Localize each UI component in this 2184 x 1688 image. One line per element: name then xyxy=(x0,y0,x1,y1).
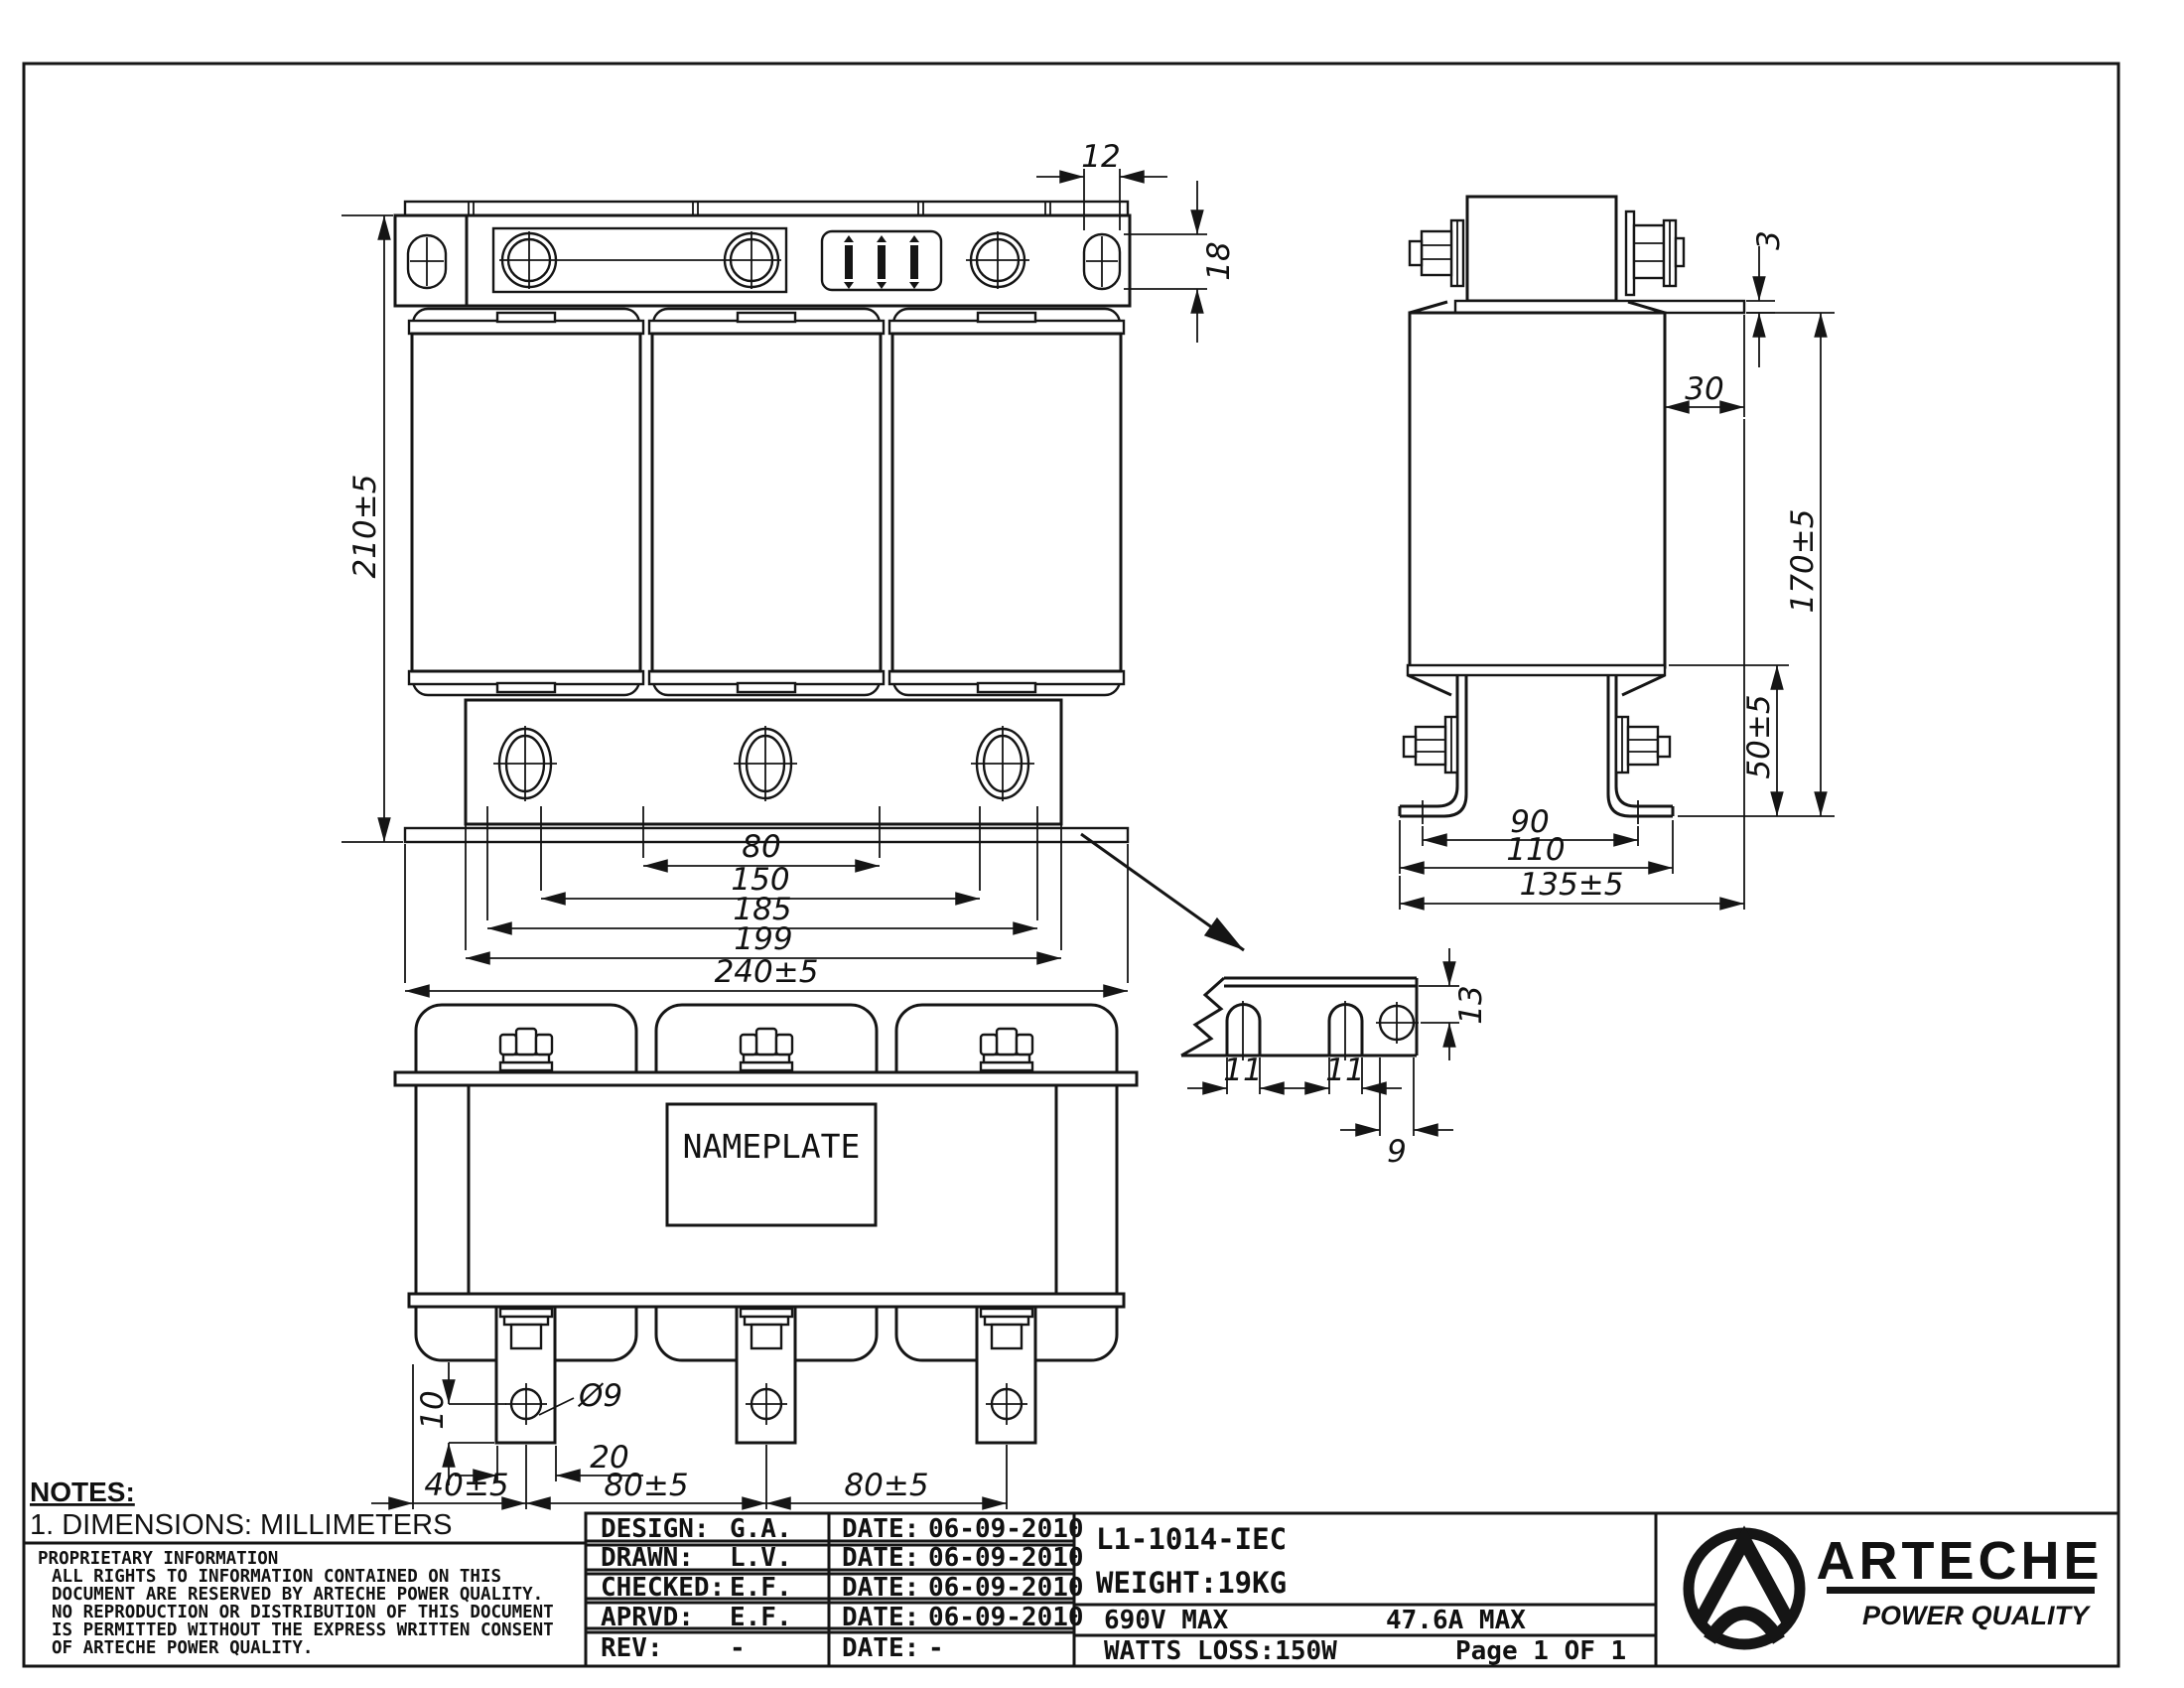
tb-date-value: 06-09-2010 xyxy=(928,1514,1084,1544)
notes-heading: NOTES: xyxy=(30,1477,135,1507)
tb-checked-value: E.F. xyxy=(730,1573,792,1603)
detail-dimensions: 11 11 13 9 xyxy=(1187,948,1489,1170)
brand-name: ARTECHE xyxy=(1816,1531,2103,1591)
tb-voltage: 690V MAX xyxy=(1104,1606,1229,1635)
brand-underline xyxy=(1827,1587,2095,1594)
front-view: 12 18 210±5 80 150 185 199 xyxy=(341,139,1244,991)
tb-aprvd-label: APRVD: xyxy=(601,1603,694,1632)
svg-text:DOCUMENT ARE RESERVED BY ARTEC: DOCUMENT ARE RESERVED BY ARTECHE POWER Q… xyxy=(52,1585,543,1605)
bracket-bolt-right xyxy=(1616,717,1670,773)
tb-date-value: 06-09-2010 xyxy=(928,1543,1084,1573)
bottom-flange xyxy=(1408,665,1665,675)
engineering-drawing-canvas: 12 18 210±5 80 150 185 199 xyxy=(0,0,2184,1688)
dim-foot-width: 110 xyxy=(1506,832,1565,868)
rear-view: NAMEPLATE 10 Ø9 20 xyxy=(371,1005,1137,1509)
tb-date-label: DATE: xyxy=(842,1514,919,1544)
svg-text:OF ARTECHE POWER QUALITY.: OF ARTECHE POWER QUALITY. xyxy=(52,1638,313,1658)
tb-current: 47.6A MAX xyxy=(1386,1606,1526,1635)
dim-offset: 30 xyxy=(1685,371,1723,407)
detail-leader-arrow xyxy=(1081,834,1244,950)
svg-text:NO REPRODUCTION OR DISTRIBUTIO: NO REPRODUCTION OR DISTRIBUTION OF THIS … xyxy=(52,1603,554,1622)
tb-part-number: L1-1014-IEC xyxy=(1096,1522,1287,1556)
dim-pitch-first: 40±5 xyxy=(424,1468,508,1503)
tb-date-value: 06-09-2010 xyxy=(928,1573,1084,1603)
dim-detail-slot-a: 11 xyxy=(1223,1053,1262,1088)
tb-date-label: DATE: xyxy=(842,1633,919,1663)
rear-bottom-plate xyxy=(409,1294,1124,1307)
dim-bracket-height: 50±5 xyxy=(1741,694,1777,778)
tb-design-value: G.A. xyxy=(730,1514,792,1544)
coil-3 xyxy=(889,309,1124,695)
dim-hole-dia: Ø9 xyxy=(577,1378,622,1414)
drawing-sheet: 12 18 210±5 80 150 185 199 xyxy=(0,0,2184,1688)
dim-pitch-a: 80±5 xyxy=(604,1468,688,1503)
dim-detail-hole-width: 9 xyxy=(1387,1134,1407,1170)
tb-rev-value: - xyxy=(730,1633,746,1663)
dim-slot-width: 12 xyxy=(1081,139,1120,175)
top-flange xyxy=(1455,301,1744,313)
tb-date-label: DATE: xyxy=(842,1543,919,1573)
dim-depth: 135±5 xyxy=(1520,867,1624,903)
tb-drawn-value: L.V. xyxy=(730,1543,792,1573)
dim-chain-80: 80 xyxy=(742,829,780,865)
tb-date-value: - xyxy=(928,1633,944,1663)
dim-detail-hole-depth: 13 xyxy=(1453,985,1489,1024)
bracket-bolt-left xyxy=(1404,717,1457,773)
dim-detail-slot-b: 11 xyxy=(1325,1053,1364,1088)
dim-pitch-b: 80±5 xyxy=(844,1468,928,1503)
rear-dimensions: 10 Ø9 20 40±5 80±5 80±5 xyxy=(371,1362,1007,1509)
svg-text:ALL RIGHTS TO INFORMATION CONT: ALL RIGHTS TO INFORMATION CONTAINED ON T… xyxy=(52,1567,501,1587)
top-strip xyxy=(405,202,1128,215)
dim-side-height: 170±5 xyxy=(1785,509,1821,614)
dim-chain-199: 199 xyxy=(734,921,792,957)
coil-1 xyxy=(409,309,643,695)
tb-weight: WEIGHT:19KG xyxy=(1096,1566,1287,1600)
rear-top-plate xyxy=(395,1072,1137,1085)
side-bolt-left xyxy=(1410,220,1463,286)
side-view: 3 30 170±5 50±5 90 110 135±5 xyxy=(1400,197,1835,910)
terminal-label-plate xyxy=(822,231,941,290)
tb-rev-label: REV: xyxy=(601,1633,663,1663)
tb-drawn-label: DRAWN: xyxy=(601,1543,694,1573)
terminal-block xyxy=(1467,197,1616,301)
dim-chain-240: 240±5 xyxy=(715,954,819,990)
brand-tagline: POWER QUALITY xyxy=(1862,1601,2092,1630)
tb-design-label: DESIGN: xyxy=(601,1514,710,1544)
tb-checked-label: CHECKED: xyxy=(601,1573,725,1603)
proprietary-note: PROPRIETARY INFORMATION ALL RIGHTS TO IN… xyxy=(38,1549,554,1658)
tb-date-value: 06-09-2010 xyxy=(928,1603,1084,1632)
arteche-logo-icon xyxy=(1689,1533,1800,1644)
dim-plate-lip: 3 xyxy=(1751,230,1787,250)
dim-hole-edge: 10 xyxy=(415,1390,451,1429)
svg-text:IS PERMITTED WITHOUT THE EXPRE: IS PERMITTED WITHOUT THE EXPRESS WRITTEN… xyxy=(52,1620,554,1640)
break-line xyxy=(1181,978,1224,1055)
dim-slot-height: 18 xyxy=(1201,241,1237,280)
logo-block: ARTECHE POWER QUALITY xyxy=(1689,1531,2104,1644)
detail-view: 11 11 13 9 xyxy=(1181,948,1489,1170)
side-body xyxy=(1410,313,1665,667)
coil-2 xyxy=(649,309,884,695)
tb-date-label: DATE: xyxy=(842,1603,919,1632)
nameplate-label: NAMEPLATE xyxy=(683,1127,861,1166)
tb-aprvd-value: E.F. xyxy=(730,1603,792,1632)
side-bolt-right xyxy=(1626,211,1684,295)
tb-watts-loss: WATTS LOSS:150W xyxy=(1104,1636,1337,1666)
tb-date-label: DATE: xyxy=(842,1573,919,1603)
dim-height: 210±5 xyxy=(347,475,383,579)
notes-dimension: 1. DIMENSIONS: MILLIMETERS xyxy=(30,1509,452,1541)
tb-page: Page 1 OF 1 xyxy=(1455,1636,1626,1666)
svg-text:PROPRIETARY INFORMATION: PROPRIETARY INFORMATION xyxy=(38,1549,278,1569)
